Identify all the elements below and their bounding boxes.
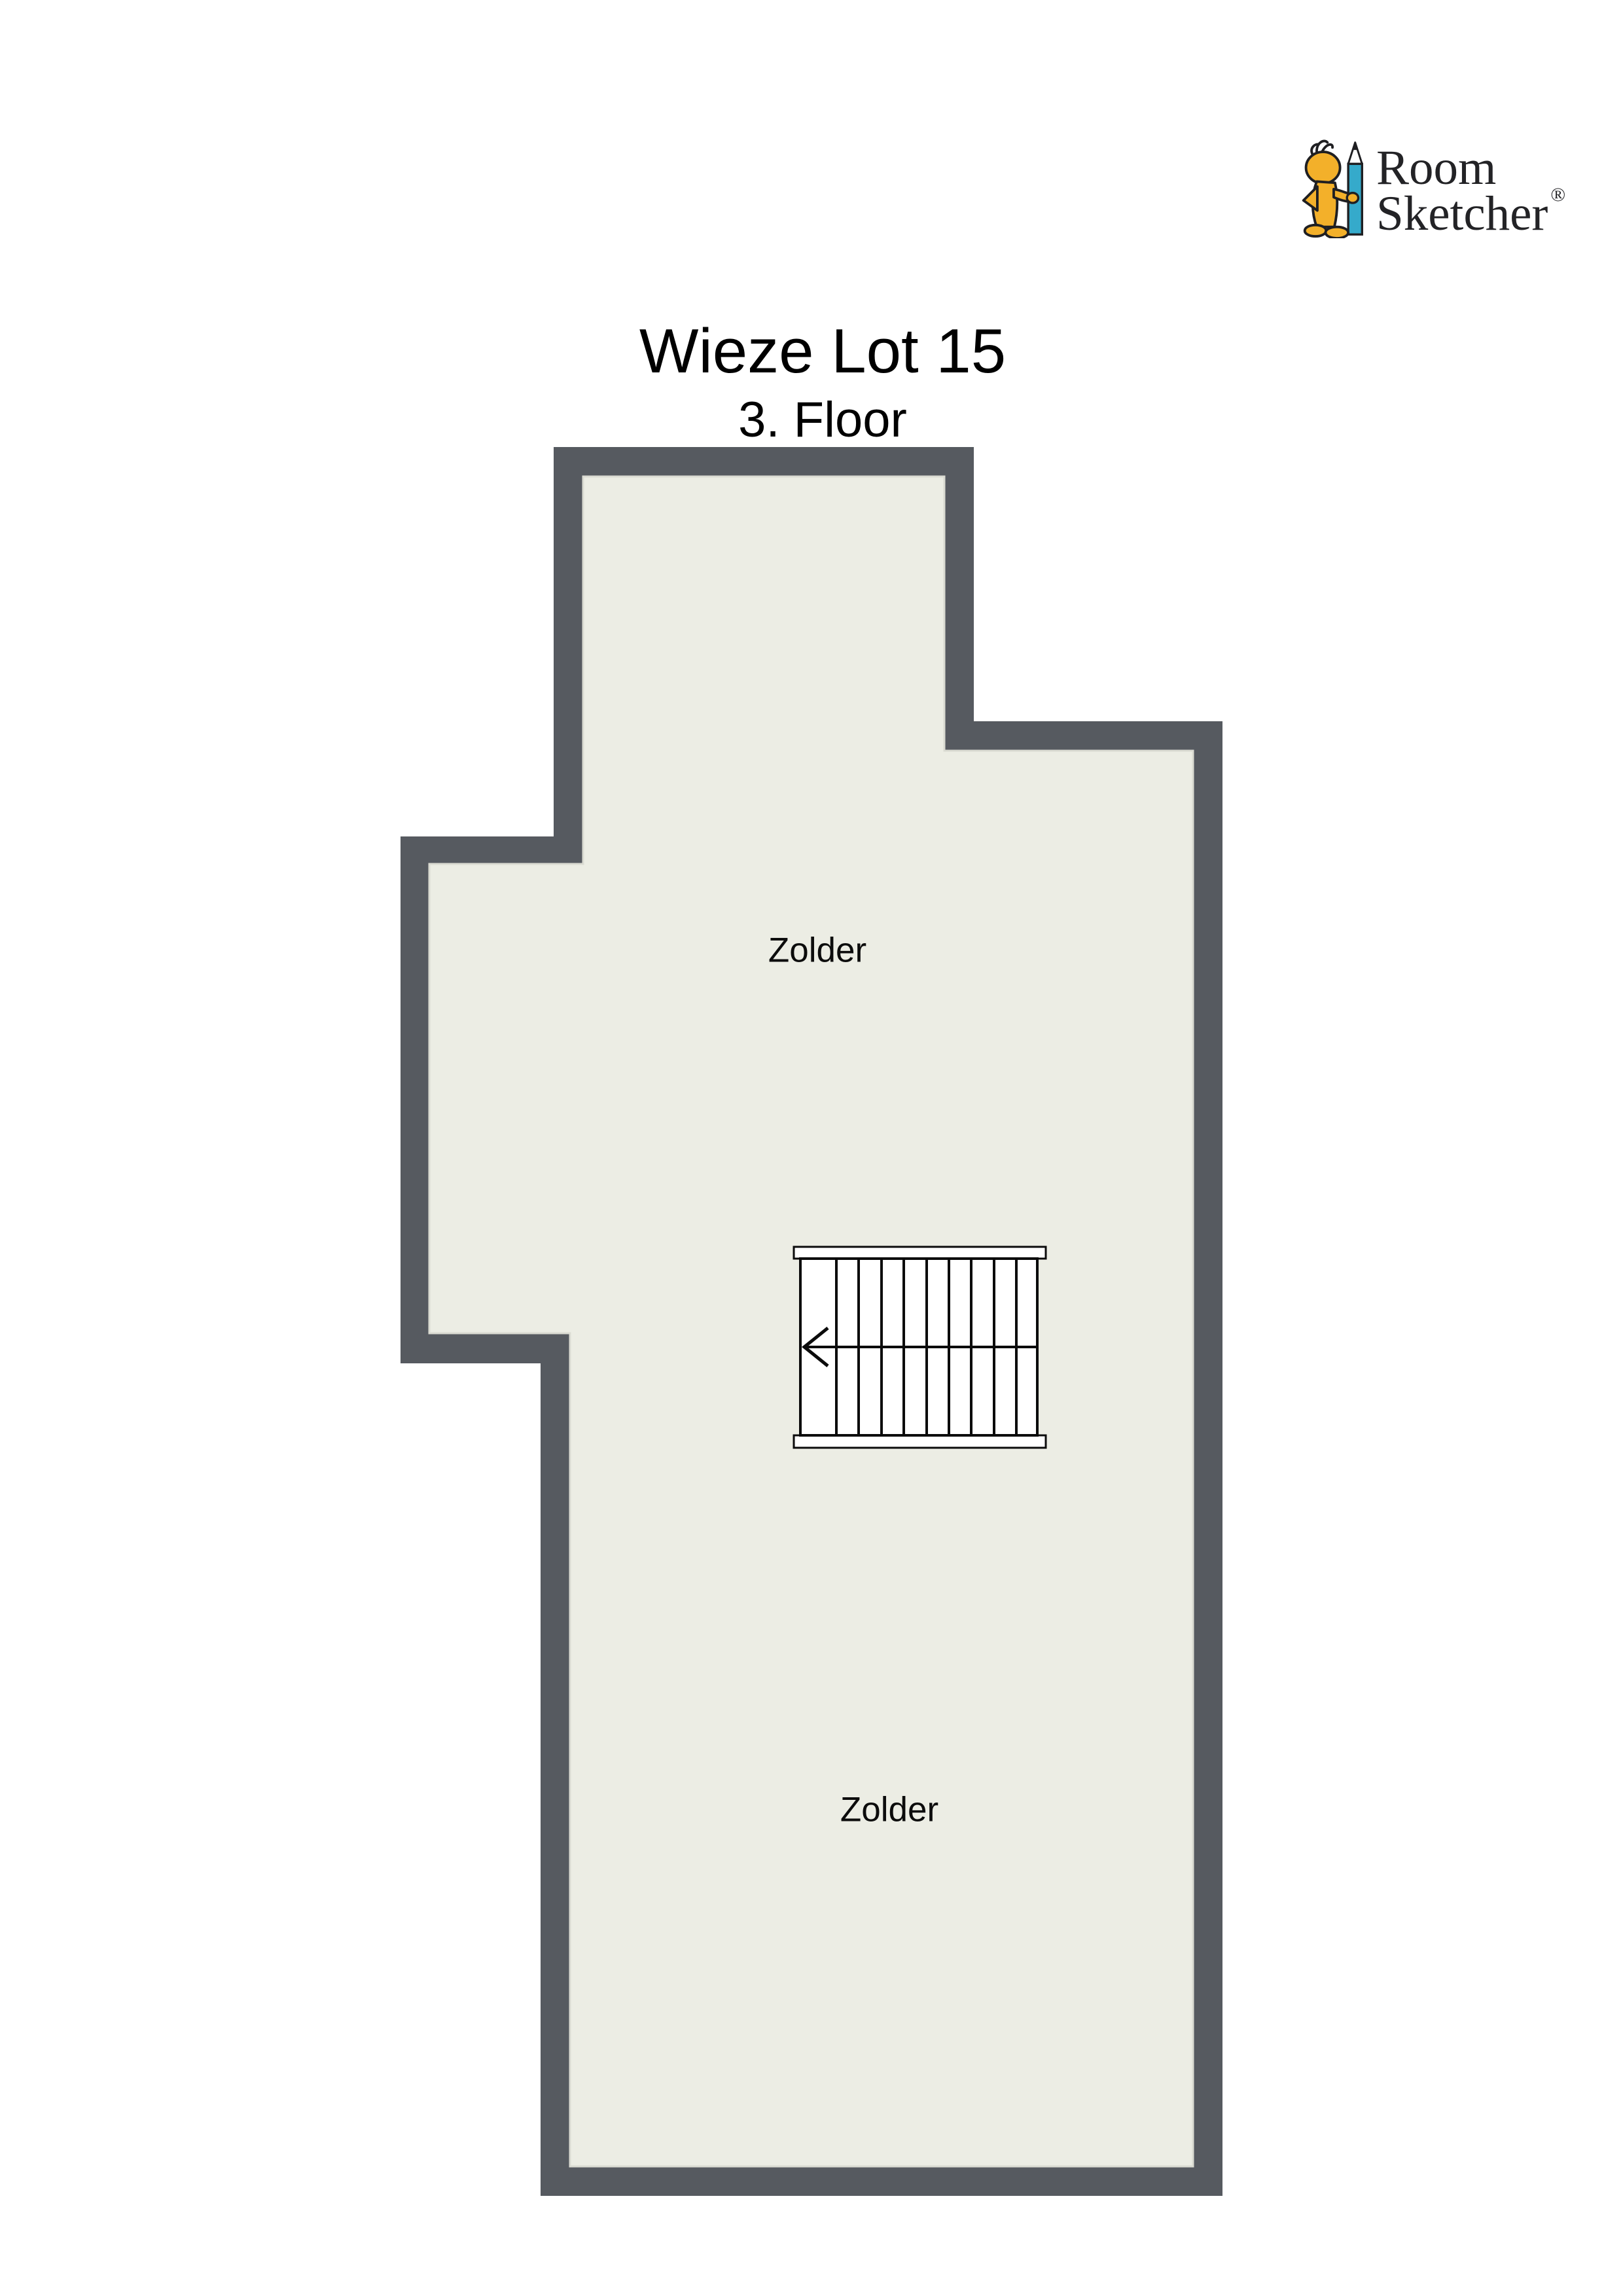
floorplan-drawing	[0, 0, 1623, 2296]
staircase	[794, 1247, 1046, 1448]
stair-top-landing	[794, 1247, 1046, 1259]
room-label-zolder-lower: Zolder	[840, 1790, 938, 1830]
room-label-zolder-upper: Zolder	[768, 931, 866, 971]
stair-bottom-landing	[794, 1435, 1046, 1448]
page: Room Sketcher® Wieze Lot 15 3. Floor Zol…	[0, 0, 1623, 2296]
